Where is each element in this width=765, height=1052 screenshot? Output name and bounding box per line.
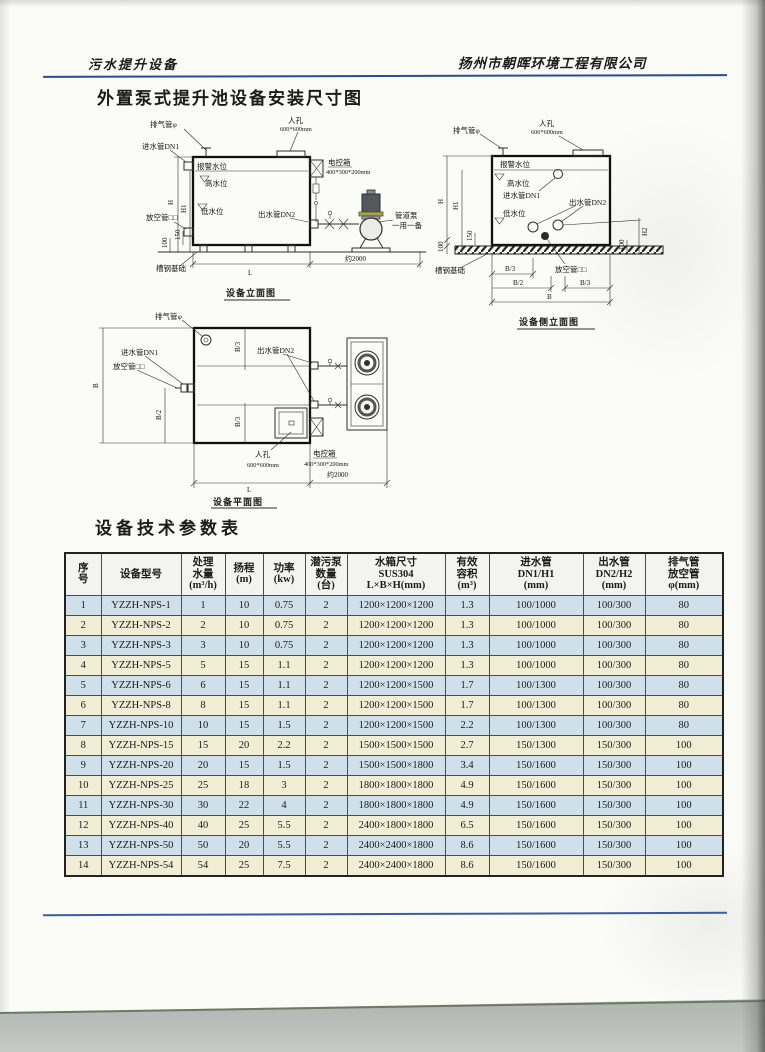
doc-header-right: 扬州市朝晖环境工程有限公司 [458,52,647,72]
table-cell: YZZH-NPS-30 [101,795,181,815]
scan-edge-left [0,0,10,1052]
table-cell: 15 [225,715,263,735]
table-row: 6YZZH-NPS-88151.121200×1200×15001.7100/1… [65,695,723,715]
table-cell: 50 [181,835,225,855]
dim-h2: H2 [641,227,649,236]
table-cell: 40 [181,815,225,835]
table-cell: 150/1600 [489,815,583,835]
table-cell: 20 [225,735,263,755]
table-cell: 22 [225,795,263,815]
table-cell: YZZH-NPS-40 [101,815,181,835]
table-cell: 3 [65,635,101,655]
table-cell: 5 [181,655,225,675]
table-title: 设备技术参数表 [95,514,242,539]
table-cell: YZZH-NPS-3 [101,635,181,655]
table-cell: 100 [645,735,723,755]
table-cell: 80 [645,655,723,675]
table-cell: 150/1600 [489,855,583,876]
table-cell: 6.5 [445,815,489,835]
table-cell: 1200×1200×1500 [347,715,445,735]
table-cell: 150/1600 [489,755,583,775]
table-cell: 150/300 [583,795,645,815]
table-cell: 2 [305,775,347,795]
table-cell: YZZH-NPS-15 [101,735,181,755]
table-row: 3YZZH-NPS-33100.7521200×1200×12001.3100/… [65,635,723,655]
table-cell: 2 [305,755,347,775]
table-cell: 150/1300 [489,735,583,755]
base-label: 槽钢基础 [156,263,186,273]
table-cell: 6 [65,695,101,715]
table-cell: 150/1600 [489,835,583,855]
plan-caption: 设备平面图 [213,496,263,507]
table-row: 12YZZH-NPS-4040255.522400×1800×18006.515… [65,815,723,835]
table-cell: 1.3 [445,655,489,675]
table-row: 9YZZH-NPS-2020151.521500×1500×18003.4150… [65,755,723,775]
table-cell: 4.9 [445,795,489,815]
table-row: 7YZZH-NPS-1010151.521200×1200×15002.2100… [65,715,723,735]
outlet-pipe-label: 出水管DN2 [258,209,295,219]
table-cell: 20 [225,835,263,855]
column-header: 出水管DN2/H2(mm) [583,553,645,595]
dim-150: 150 [466,230,474,241]
table-row: 2YZZH-NPS-22100.7521200×1200×12001.3100/… [65,615,723,635]
dim-h: H [167,200,175,205]
header-row: 序号设备型号处理水量(m³/h)扬程(m)功率(kw)潜污泵数量(台)水箱尺寸S… [65,553,723,595]
elevation-drawing: 排气管φ 进水管DN1 人孔 600*600mm 电控箱 400*300*200… [140,112,430,310]
table-cell: 15 [181,735,225,755]
dim-h1: H1 [452,201,460,210]
dim-100: 100 [161,237,169,248]
table-cell: 150/300 [583,755,645,775]
control-box-size-label: 400*300*200mm [304,461,349,468]
table-cell: 1800×1800×1800 [347,775,445,795]
table-cell: 100/300 [583,695,645,715]
table-cell: 2400×2400×1800 [347,855,445,876]
table-cell: YZZH-NPS-8 [101,695,181,715]
table-cell: 8.6 [445,835,489,855]
table-cell: 1 [65,595,101,615]
table-cell: 1200×1200×1200 [347,595,445,615]
table-cell: 100 [645,775,723,795]
table-cell: 100/300 [583,615,645,635]
column-header: 有效容积(m³) [445,553,489,595]
table-cell: 1.1 [263,655,305,675]
table-cell: 1.7 [445,695,489,715]
table-cell: 8 [65,735,101,755]
table-row: 11YZZH-NPS-303022421800×1800×18004.9150/… [65,795,723,815]
table-cell: 15 [225,655,263,675]
table-cell: 0.75 [263,595,305,615]
table-cell: 150/300 [583,735,645,755]
doc-header-left: 污水提升设备 [88,54,178,73]
table-cell: 1.5 [263,715,305,735]
table-cell: 10 [65,775,101,795]
table-row: 5YZZH-NPS-66151.121200×1200×15001.7100/1… [65,675,723,695]
table-cell: 100 [645,855,723,876]
table-cell: 2 [305,595,347,615]
table-cell: 2.2 [263,735,305,755]
inlet-pipe-label: 进水管DN1 [121,347,158,357]
table-cell: 2 [305,815,347,835]
table-cell: 2.7 [445,735,489,755]
table-cell: 150/300 [583,815,645,835]
column-header: 序号 [65,553,101,595]
dim-b3-a: B/3 [234,341,242,352]
table-cell: 1.1 [263,675,305,695]
table-cell: 80 [645,595,723,615]
table-cell: 1.7 [445,675,489,695]
table-cell: 1.5 [263,755,305,775]
table-row: 8YZZH-NPS-1515202.221500×1500×15002.7150… [65,735,723,755]
table-cell: 1500×1500×1800 [347,755,445,775]
table-cell: 100/300 [583,675,645,695]
column-header: 设备型号 [101,553,181,595]
manhole-size-label: 600*600mm [531,129,563,136]
table-cell: 150/1600 [489,775,583,795]
table-cell: 1.3 [445,635,489,655]
table-cell: 100 [645,795,723,815]
table-cell: 6 [181,675,225,695]
base-label: 槽钢基础 [435,265,465,275]
dim-h: H [437,199,445,204]
table-cell: 100/1300 [489,695,583,715]
dim-b: B [92,383,100,388]
table-cell: 30 [181,795,225,815]
manhole-label: 人孔 [288,116,303,125]
table-cell: 3.4 [445,755,489,775]
table-cell: 2 [305,715,347,735]
control-box-label: 电控箱 [328,157,351,167]
table-cell: 0.75 [263,615,305,635]
dim-pump-span: 约2000 [345,254,366,263]
outlet-pipe-label: 出水管DN2 [569,197,606,207]
low-level-label: 低水位 [201,206,224,216]
table-cell: 0.75 [263,635,305,655]
table-cell: 10 [181,715,225,735]
table-cell: 1800×1800×1800 [347,795,445,815]
table-cell: 1200×1200×1500 [347,675,445,695]
table-cell: YZZH-NPS-1 [101,595,181,615]
table-cell: 4 [263,795,305,815]
table-cell: 150/300 [583,835,645,855]
table-cell: 100/300 [583,715,645,735]
control-box-size-label: 400*300*200mm [326,169,371,176]
manhole-label: 人孔 [255,450,270,459]
table-cell: YZZH-NPS-5 [101,655,181,675]
dim-h1: H1 [180,204,188,213]
control-box-label: 电控箱 [313,448,336,458]
page-title: 外置泵式提升池设备安装尺寸图 [97,84,363,109]
table-row: 10YZZH-NPS-252518321800×1800×18004.9150/… [65,775,723,795]
table-cell: 2 [305,635,347,655]
vent-pipe-label: 排气管φ [155,311,182,321]
table-cell: 1200×1200×1200 [347,655,445,675]
table-cell: 100/300 [583,595,645,615]
table-cell: 100 [645,755,723,775]
table-cell: 2 [65,615,101,635]
alarm-level-label: 报警水位 [500,159,530,169]
table-cell: 100/1300 [489,675,583,695]
table-cell: 150/300 [583,855,645,876]
table-cell: 14 [65,855,101,876]
column-header: 排气管放空管φ(mm) [645,553,723,595]
table-cell: 3 [263,775,305,795]
table-cell: 5.5 [263,815,305,835]
table-cell: 100/1000 [489,595,583,615]
table-cell: 10 [225,615,263,635]
plan-drawing: 排气管φ 进水管DN1 放空管□□ 出水管DN2 人孔 600*600mm 电控… [85,308,425,510]
manhole-size-label: 600*600mm [280,126,312,133]
low-level-label: 低水位 [503,208,526,218]
table-row: 13YZZH-NPS-5050205.522400×2400×18008.615… [65,835,723,855]
table-cell: 2 [305,695,347,715]
table-cell: 100/1300 [489,715,583,735]
table-cell: 20 [181,755,225,775]
dim-pump-span: 约2000 [327,470,348,479]
vent-pipe-label: 排气管φ [453,125,480,135]
inlet-pipe-label: 进水管DN1 [503,190,540,200]
table-cell: 80 [645,675,723,695]
table-cell: YZZH-NPS-54 [101,855,181,876]
side-caption: 设备侧立面图 [519,316,579,327]
table-cell: 80 [645,715,723,735]
table-cell: 5 [65,675,101,695]
table-cell: 1.3 [445,615,489,635]
table-cell: 100/300 [583,655,645,675]
table-cell: 150/1600 [489,795,583,815]
drain-pipe-label: 放空管□□ [555,264,587,274]
table-cell: 1200×1200×1200 [347,615,445,635]
table-cell: 100 [645,815,723,835]
table-cell: YZZH-NPS-50 [101,835,181,855]
dim-l: L [247,486,251,494]
table-cell: 2 [181,615,225,635]
table-cell: 7.5 [263,855,305,876]
table-cell: 13 [65,835,101,855]
dim-b2: B/2 [513,279,524,287]
table-cell: 2 [305,655,347,675]
table-cell: 2 [305,675,347,695]
table-cell: YZZH-NPS-6 [101,675,181,695]
table-cell: 7 [65,715,101,735]
dim-l: L [248,269,252,277]
table-cell: 80 [645,635,723,655]
table-cell: 25 [181,775,225,795]
drain-pipe-label: 放空管□□ [113,361,145,371]
table-cell: 100/1000 [489,615,583,635]
table-cell: 25 [225,855,263,876]
table-cell: 100 [645,835,723,855]
dim-b: B [547,293,552,301]
params-table: 序号设备型号处理水量(m³/h)扬程(m)功率(kw)潜污泵数量(台)水箱尺寸S… [64,552,724,877]
table-cell: 18 [225,775,263,795]
vent-pipe-label: 排气管φ [150,119,177,129]
inlet-pipe-label: 进水管DN1 [142,141,179,151]
table-cell: 2.2 [445,715,489,735]
header-rule [43,74,727,78]
table-cell: 10 [225,635,263,655]
table-cell: 1200×1200×1500 [347,695,445,715]
table-cell: 9 [65,755,101,775]
column-header: 潜污泵数量(台) [305,553,347,595]
dim-b2: B/2 [155,409,163,420]
table-cell: 4 [65,655,101,675]
table-cell: 2400×2400×1800 [347,835,445,855]
column-header: 功率(kw) [263,553,305,595]
table-cell: 54 [181,855,225,876]
dim-100: 100 [437,241,445,252]
table-cell: 15 [225,675,263,695]
scanned-page: 污水提升设备 扬州市朝晖环境工程有限公司 外置泵式提升池设备安装尺寸图 [0,0,765,1052]
side-elevation-drawing: 排气管φ 人孔 600*600mm 报警水位 高水位 进水管DN1 出水管DN2… [425,108,715,340]
table-cell: 2 [305,835,347,855]
table-cell: 10 [225,595,263,615]
table-cell: 80 [645,615,723,635]
dim-b3-b: B/3 [234,416,242,427]
column-header: 水箱尺寸SUS304L×B×H(mm) [347,553,445,595]
table-cell: 1500×1500×1500 [347,735,445,755]
table-cell: 5.5 [263,835,305,855]
table-cell: YZZH-NPS-20 [101,755,181,775]
table-cell: 8.6 [445,855,489,876]
dim-150: 150 [174,229,182,240]
manhole-label: 人孔 [539,119,554,128]
table-cell: YZZH-NPS-25 [101,775,181,795]
table-cell: 80 [645,695,723,715]
column-header: 进水管DN1/H1(mm) [489,553,583,595]
table-cell: 11 [65,795,101,815]
elevation-caption: 设备立面图 [226,287,276,298]
dim-b3-a: B/3 [505,265,516,273]
table-row: 14YZZH-NPS-5454257.522400×2400×18008.615… [65,855,723,876]
high-level-label: 高水位 [507,178,530,188]
table-cell: 2400×1800×1800 [347,815,445,835]
alarm-level-label: 报警水位 [197,161,227,171]
pump-label: 管道泵 [395,210,418,220]
table-cell: 15 [225,695,263,715]
table-row: 1YZZH-NPS-11100.7521200×1200×12001.3100/… [65,595,723,615]
table-cell: 150/300 [583,775,645,795]
table-cell: 2 [305,735,347,755]
dim-100-right: 100 [618,239,626,250]
table-cell: 15 [225,755,263,775]
pump-note-label: 一用一备 [392,220,422,230]
table-cell: 1 [181,595,225,615]
table-cell: 12 [65,815,101,835]
dim-b3-b: B/3 [580,279,591,287]
table-cell: 3 [181,635,225,655]
table-cell: 100/300 [583,635,645,655]
column-header: 扬程(m) [225,553,263,595]
table-cell: 100/1000 [489,655,583,675]
table-cell: 2 [305,615,347,635]
table-cell: 100/1000 [489,635,583,655]
table-cell: 25 [225,815,263,835]
table-row: 4YZZH-NPS-55151.121200×1200×12001.3100/1… [65,655,723,675]
drain-pipe-label: 放空管□□ [146,212,178,222]
scan-edge-top [0,0,765,7]
manhole-size-label: 600*600mm [247,462,279,469]
table-cell: 1.3 [445,595,489,615]
table-cell: YZZH-NPS-2 [101,615,181,635]
table-cell: YZZH-NPS-10 [101,715,181,735]
table-cell: 2 [305,795,347,815]
table-cell: 1200×1200×1200 [347,635,445,655]
column-header: 处理水量(m³/h) [181,553,225,595]
table-cell: 1.1 [263,695,305,715]
table-cell: 8 [181,695,225,715]
outlet-pipe-label: 出水管DN2 [257,345,294,355]
table-cell: 4.9 [445,775,489,795]
table-cell: 2 [305,855,347,876]
high-level-label: 高水位 [205,178,228,188]
scan-edge-right [741,0,765,1052]
